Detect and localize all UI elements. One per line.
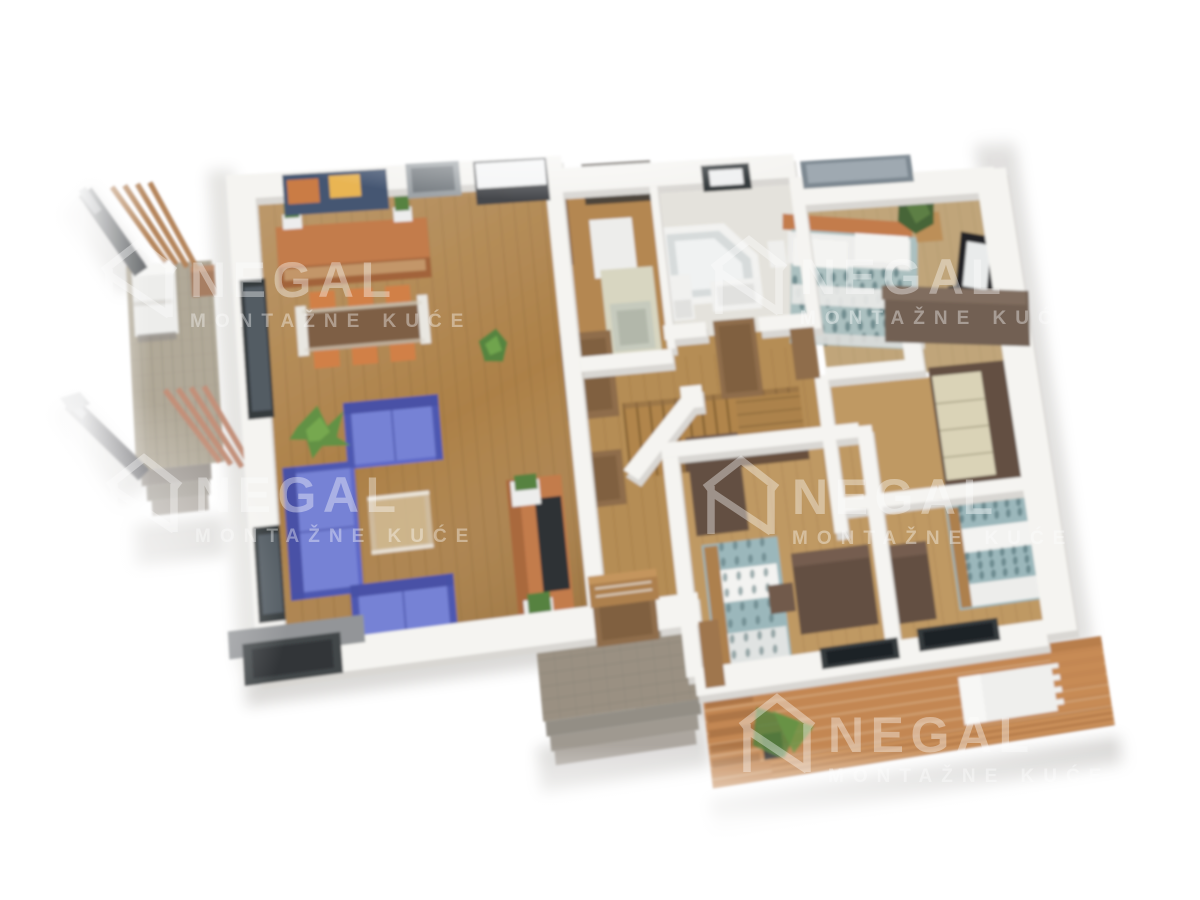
svg-text:NEGAL: NEGAL (190, 252, 398, 308)
svg-text:MONTAŽNE KUĆE: MONTAŽNE KUĆE (190, 310, 472, 332)
svg-text:MONTAŽNE KUĆE: MONTAŽNE KUĆE (792, 527, 1074, 549)
svg-text:NEGAL: NEGAL (792, 469, 1000, 525)
svg-text:MONTAŽNE KUĆE: MONTAŽNE KUĆE (800, 307, 1082, 329)
svg-text:NEGAL: NEGAL (800, 249, 1008, 305)
